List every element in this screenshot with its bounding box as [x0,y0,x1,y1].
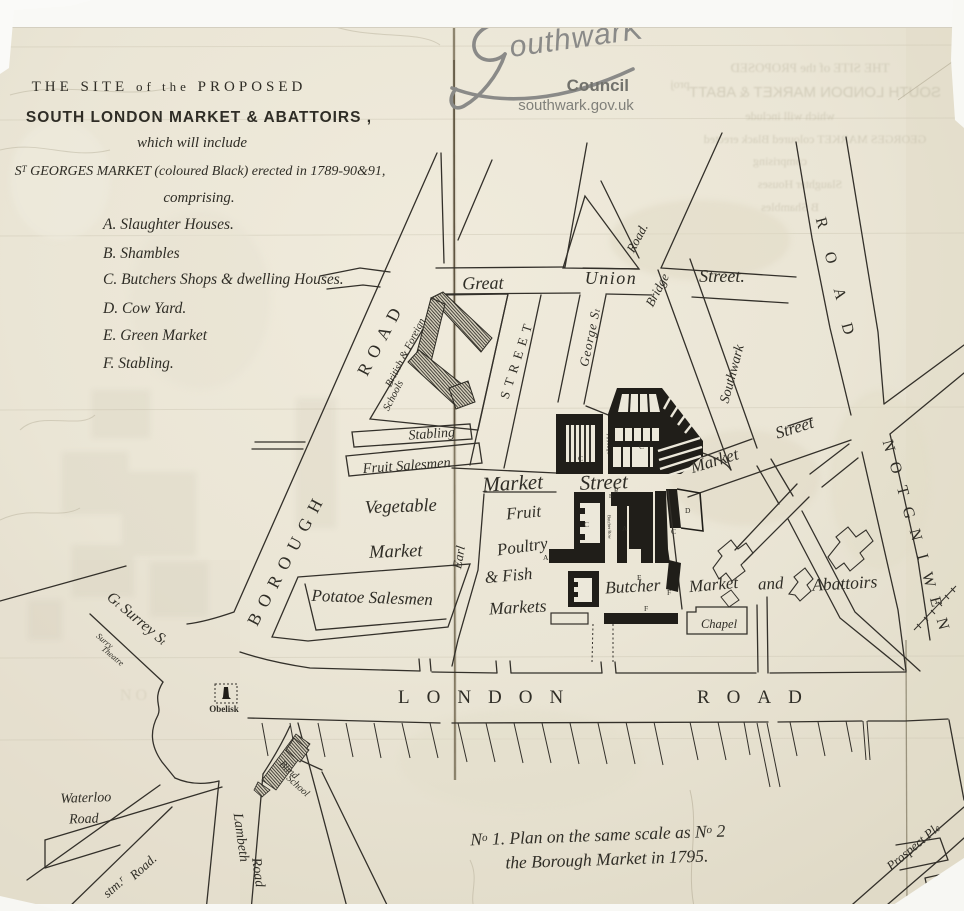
svg-text:Slaughter Houses: Slaughter Houses [758,177,843,191]
svg-text:A: A [622,524,628,533]
svg-text:C: C [578,454,583,463]
svg-text:Union: Union [585,268,638,288]
svg-text:F. Stabling.: F. Stabling. [102,355,174,372]
svg-text:Great: Great [462,273,505,294]
svg-text:A: A [543,553,549,562]
svg-text:Market: Market [368,541,424,563]
svg-text:P a s s a g e: P a s s a g e [606,433,612,454]
svg-text:Waterloo: Waterloo [60,790,111,807]
svg-text:SOUTH LONDON MARKET & ABATTOIR: SOUTH LONDON MARKET & ABATTOIRS , [26,109,372,126]
svg-text:C: C [671,527,676,536]
svg-text:SOUTH LONDON MARKET & ABATT: SOUTH LONDON MARKET & ABATT [689,84,941,101]
svg-text:ROAD: ROAD [697,687,819,708]
svg-text:Market: Market [481,469,545,496]
svg-text:Road: Road [68,811,100,827]
svg-text:E. Green Market: E. Green Market [102,327,208,344]
svg-text:D. Cow Yard.: D. Cow Yard. [102,300,186,317]
svg-text:THE SITE of the PROPOSED: THE SITE of the PROPOSED [32,79,307,95]
svg-text:Street.: Street. [699,266,745,286]
svg-text:Fruit: Fruit [504,501,543,523]
svg-text:which will include: which will include [137,135,247,151]
svg-text:comprising.: comprising. [163,190,234,206]
svg-text:C: C [639,442,644,451]
svg-text:D: D [685,506,691,515]
svg-text:Council: Council [567,76,629,95]
svg-text:Markets: Markets [488,596,548,619]
svg-text:Butcher Row: Butcher Row [607,515,613,540]
svg-text:C: C [581,588,585,595]
svg-text:R: R [614,487,619,495]
svg-text:and: and [757,573,784,593]
svg-text:B Shambles: B Shambles [761,200,819,214]
svg-text:Obelisk: Obelisk [209,704,239,714]
svg-text:B. Shambles: B. Shambles [103,245,180,262]
svg-text:C: C [584,520,589,529]
svg-text:E: E [637,573,642,582]
svg-text:A. Slaughter Houses.: A. Slaughter Houses. [102,216,234,233]
svg-text:proj: proj [670,77,689,91]
svg-text:which will include: which will include [745,109,834,123]
svg-text:N O: N O [120,687,147,704]
svg-text:ST GEORGES MARKET (coloured Bl: ST GEORGES MARKET (coloured Black) erect… [15,164,386,179]
svg-text:F: F [667,588,671,597]
svg-text:LONDON: LONDON [398,687,580,708]
svg-text:Chapel: Chapel [701,617,738,631]
svg-text:Street: Street [579,469,629,495]
svg-text:C. Butchers Shops & dwelling H: C. Butchers Shops & dwelling Houses. [103,271,344,288]
svg-text:B: B [609,494,613,500]
svg-text:southwark.gov.uk: southwark.gov.uk [518,97,634,114]
svg-text:THE SITE of the PROPOSED: THE SITE of the PROPOSED [731,60,890,75]
svg-text:Vegetable: Vegetable [365,496,438,518]
svg-text:Butcher: Butcher [604,575,661,598]
svg-text:GEORGES MARKET coloured Black: GEORGES MARKET coloured Black erected [704,132,926,146]
svg-text:F: F [644,604,648,613]
svg-text:Abattoirs: Abattoirs [811,571,878,594]
